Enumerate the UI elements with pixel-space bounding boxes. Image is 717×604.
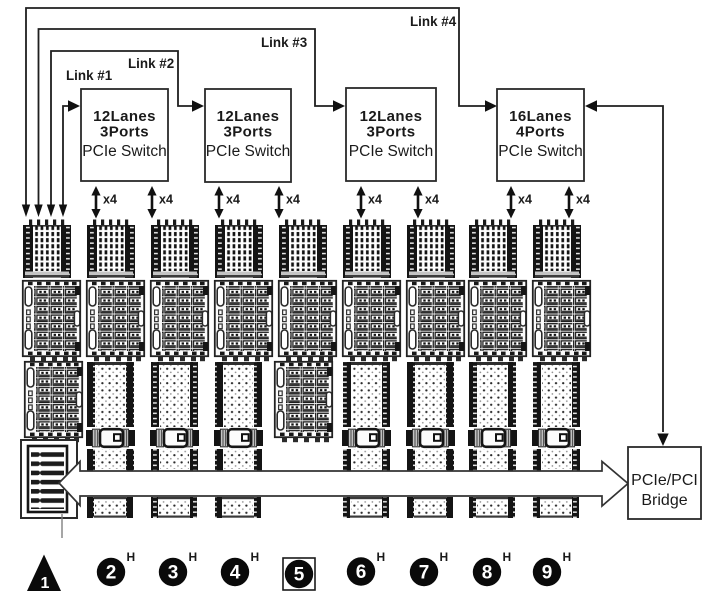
svg-text:x4: x4 — [286, 193, 300, 207]
svg-text:5: 5 — [294, 565, 305, 586]
svg-text:H: H — [503, 550, 512, 564]
svg-text:Bridge: Bridge — [641, 492, 687, 509]
svg-text:PCIe Switch: PCIe Switch — [206, 143, 290, 160]
svg-text:x4: x4 — [159, 193, 173, 207]
svg-text:12Lanes: 12Lanes — [93, 108, 156, 125]
svg-text:PCIe/PCI: PCIe/PCI — [631, 472, 698, 489]
svg-text:3: 3 — [168, 563, 179, 584]
svg-text:x4: x4 — [576, 193, 590, 207]
svg-text:H: H — [377, 550, 386, 564]
svg-text:x4: x4 — [425, 193, 439, 207]
svg-text:Link #3: Link #3 — [261, 35, 307, 50]
svg-text:3Ports: 3Ports — [100, 124, 149, 141]
svg-text:1: 1 — [41, 575, 50, 592]
svg-text:2: 2 — [106, 563, 117, 584]
svg-text:16Lanes: 16Lanes — [509, 108, 572, 125]
svg-text:3Ports: 3Ports — [366, 124, 415, 141]
svg-text:H: H — [251, 550, 260, 564]
svg-text:x4: x4 — [518, 193, 532, 207]
svg-text:x4: x4 — [226, 193, 240, 207]
svg-text:H: H — [563, 550, 572, 564]
svg-text:12Lanes: 12Lanes — [360, 108, 423, 125]
svg-text:H: H — [189, 550, 198, 564]
svg-text:8: 8 — [482, 563, 493, 584]
svg-text:7: 7 — [419, 563, 430, 584]
svg-text:6: 6 — [356, 562, 367, 583]
svg-text:H: H — [440, 550, 449, 564]
svg-text:3Ports: 3Ports — [223, 124, 272, 141]
svg-text:PCIe Switch: PCIe Switch — [498, 143, 582, 160]
svg-text:Link #1: Link #1 — [66, 68, 113, 83]
svg-text:H: H — [127, 550, 136, 564]
svg-text:PCIe Switch: PCIe Switch — [349, 143, 433, 160]
svg-text:4: 4 — [230, 563, 241, 584]
svg-text:x4: x4 — [368, 193, 382, 207]
svg-text:x4: x4 — [103, 193, 117, 207]
svg-text:9: 9 — [542, 563, 553, 584]
svg-text:12Lanes: 12Lanes — [217, 108, 280, 125]
svg-text:PCIe Switch: PCIe Switch — [82, 143, 166, 160]
svg-text:Link #4: Link #4 — [410, 14, 457, 29]
svg-text:4Ports: 4Ports — [516, 124, 565, 141]
svg-text:Link #2: Link #2 — [128, 56, 174, 71]
